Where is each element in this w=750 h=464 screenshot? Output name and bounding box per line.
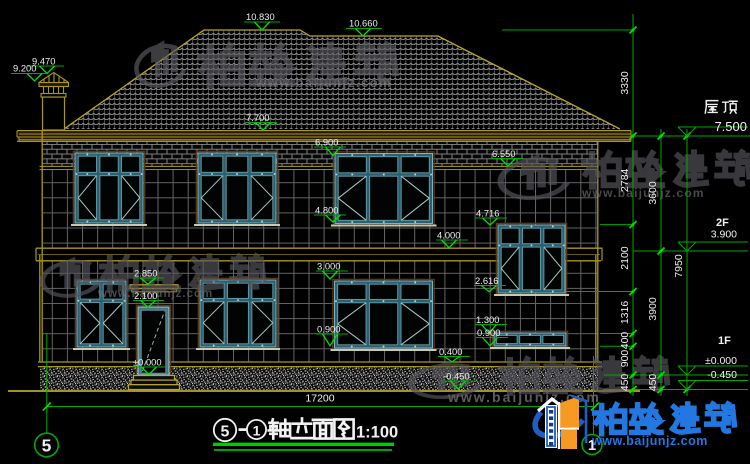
svg-text:-0.450: -0.450 (443, 371, 470, 382)
svg-text:3600: 3600 (647, 181, 659, 205)
svg-text:17200: 17200 (305, 393, 334, 405)
svg-text:450: 450 (619, 374, 631, 392)
svg-text:9.200: 9.200 (13, 63, 36, 74)
svg-text:3900: 3900 (647, 297, 659, 321)
svg-text:2.616: 2.616 (475, 275, 498, 286)
svg-text:0.900: 0.900 (477, 327, 500, 338)
svg-text:2.850: 2.850 (134, 268, 157, 279)
svg-text:5: 5 (42, 436, 52, 456)
svg-text:2784: 2784 (619, 168, 631, 192)
svg-text:1:100: 1:100 (356, 424, 398, 442)
svg-text:1F: 1F (718, 335, 731, 347)
svg-text:6.900: 6.900 (315, 137, 338, 148)
svg-text:7950: 7950 (673, 254, 685, 278)
svg-text:3330: 3330 (619, 71, 631, 95)
svg-text:2F: 2F (716, 217, 729, 229)
svg-text:450: 450 (647, 374, 659, 392)
svg-text:2100: 2100 (619, 246, 631, 270)
svg-text:±0.000: ±0.000 (133, 357, 162, 368)
svg-text:5: 5 (221, 424, 230, 441)
svg-text:4.000: 4.000 (437, 230, 460, 241)
svg-text:2.100: 2.100 (134, 290, 157, 301)
svg-text:1.300: 1.300 (476, 314, 499, 325)
svg-text:3.900: 3.900 (711, 229, 737, 241)
svg-text:7.700: 7.700 (246, 112, 269, 123)
svg-text:-0.450: -0.450 (707, 369, 737, 381)
svg-text:0.900: 0.900 (317, 324, 340, 335)
svg-text:10.660: 10.660 (349, 18, 378, 29)
svg-text:4.800: 4.800 (315, 205, 338, 216)
svg-text:4.716: 4.716 (476, 208, 499, 219)
svg-text:7.500: 7.500 (714, 119, 747, 134)
svg-text:www.baijunjz.com: www.baijunjz.com (255, 75, 392, 90)
svg-text:±0.000: ±0.000 (705, 355, 737, 367)
svg-text:www.baijunjz.com: www.baijunjz.com (581, 186, 705, 200)
svg-text:6.550: 6.550 (492, 148, 515, 159)
svg-text:10.830: 10.830 (246, 11, 275, 22)
svg-text:www.baijunjz.com: www.baijunjz.com (591, 434, 708, 448)
svg-text:3.000: 3.000 (317, 261, 340, 272)
svg-text:900: 900 (619, 350, 631, 368)
svg-text:0.400: 0.400 (439, 346, 462, 357)
svg-text:1316: 1316 (619, 301, 631, 325)
svg-text:1: 1 (253, 423, 261, 439)
svg-text:400: 400 (619, 332, 631, 350)
